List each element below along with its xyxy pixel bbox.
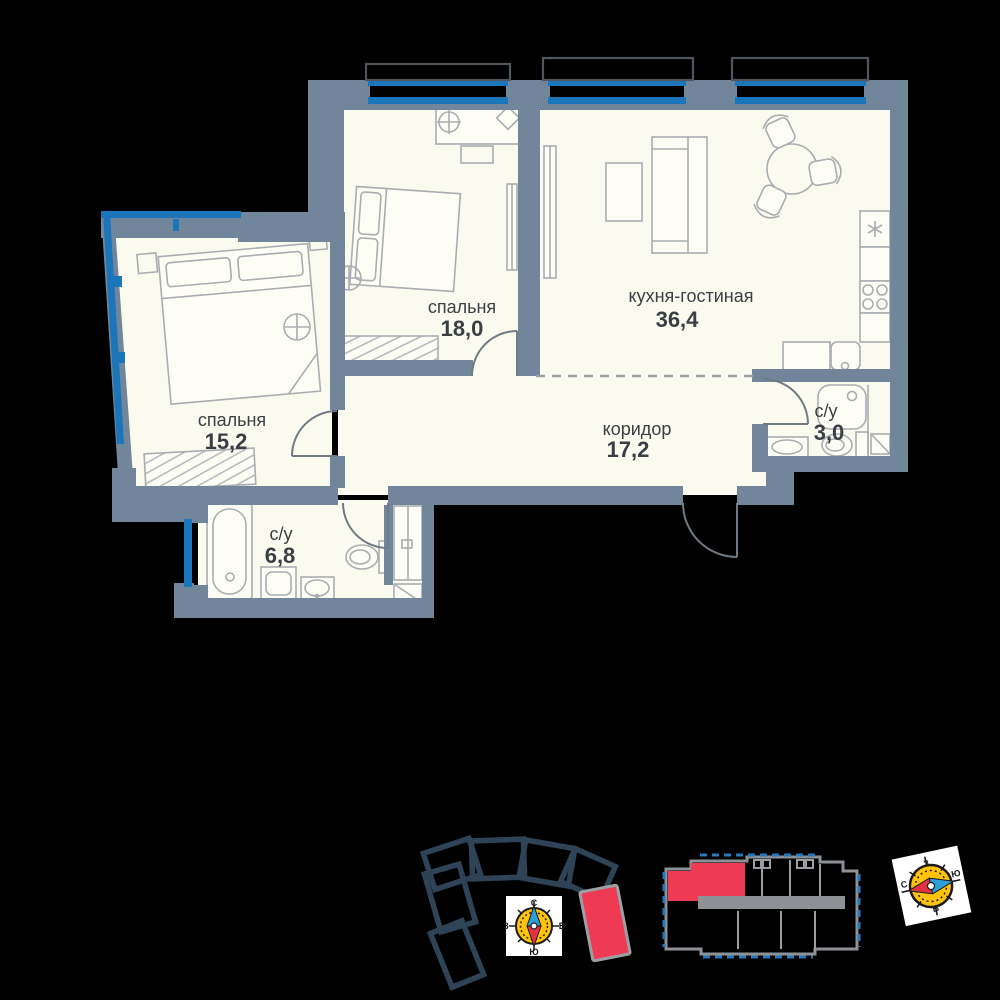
- washing-machine: [261, 567, 296, 600]
- room-area-bathroom-3: 3,0: [814, 420, 845, 445]
- floor-plan-page: спальня 18,0 кухня-гостиная 36,4 спальня…: [0, 0, 1000, 1000]
- compass-south-label: Ю: [529, 947, 538, 957]
- compass-north-label: С: [531, 898, 538, 908]
- compass-icon: С Ю З В: [892, 846, 972, 926]
- window-kitchen-2: [735, 79, 866, 104]
- room-area-bedroom-18: 18,0: [441, 316, 484, 341]
- double-bed-bedroom-18: [350, 186, 461, 291]
- stove-icon: [860, 281, 890, 313]
- coffee-table: [606, 163, 642, 221]
- room-label-bedroom-15: спальня: [198, 410, 266, 430]
- wardrobe-bedroom-15: [144, 448, 256, 490]
- room-label-bathroom-6: с/у: [269, 524, 292, 544]
- wardrobe-bedroom-18: [342, 336, 438, 364]
- window-bathroom-6: [184, 519, 192, 587]
- room-area-corridor: 17,2: [607, 437, 650, 462]
- window-bedroom-18: [368, 79, 508, 104]
- floor-plan-canvas: спальня 18,0 кухня-гостиная 36,4 спальня…: [0, 0, 1000, 1000]
- compass-east-label: В: [559, 921, 566, 931]
- room-area-bathroom-6: 6,8: [265, 543, 296, 568]
- site-compass: С Ю З В: [503, 896, 566, 957]
- room-label-bathroom-3: с/у: [814, 401, 837, 421]
- room-label-bedroom-18: спальня: [428, 297, 496, 317]
- duct-box: [871, 434, 890, 454]
- room-floor-corridor: [338, 370, 766, 495]
- sink-bathroom-3: [767, 437, 808, 458]
- hall-closet: [394, 506, 422, 603]
- radiator-bedroom-18: [507, 184, 517, 270]
- sofa: [652, 137, 707, 253]
- bathtub: [207, 503, 252, 600]
- core-corridor: [698, 896, 845, 909]
- window-kitchen-1: [548, 79, 686, 104]
- sink-bathroom-6: [301, 577, 334, 600]
- room-label-corridor: коридор: [603, 419, 672, 439]
- room-floor-kitchen: [530, 100, 895, 375]
- room-area-bedroom-15: 15,2: [205, 429, 248, 454]
- compass-west-label: З: [503, 921, 509, 931]
- kitchen-sink: [831, 342, 860, 370]
- room-area-kitchen: 36,4: [656, 307, 700, 332]
- radiator-kitchen: [544, 146, 556, 278]
- room-label-kitchen: кухня-гостиная: [629, 286, 754, 306]
- lamp-icon-bedroom-15: [284, 314, 310, 340]
